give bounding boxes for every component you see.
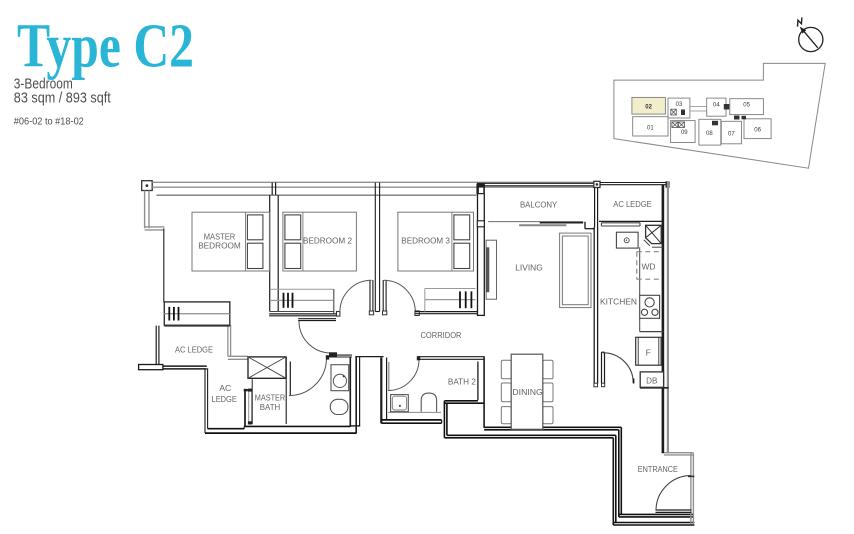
svg-text:F: F [646,347,651,357]
svg-text:07: 07 [728,132,735,138]
svg-text:09: 09 [681,130,688,136]
svg-text:MASTER: MASTER [255,393,285,403]
svg-text:01: 01 [647,125,654,131]
svg-text:BALCONY: BALCONY [520,200,558,210]
svg-text:83 sqm / 893 sqft: 83 sqm / 893 sqft [14,90,112,107]
svg-text:WD: WD [642,262,656,272]
svg-text:BEDROOM: BEDROOM [198,241,241,251]
svg-text:BATH: BATH [260,402,281,412]
svg-text:BEDROOM 3: BEDROOM 3 [401,236,450,246]
svg-text:AC: AC [219,383,231,393]
svg-text:05: 05 [743,103,750,109]
svg-text:BEDROOM 2: BEDROOM 2 [303,236,352,246]
svg-text:06: 06 [754,127,761,133]
svg-text:ENTRANCE: ENTRANCE [638,464,678,474]
svg-text:Type C2: Type C2 [17,13,194,81]
svg-text:04: 04 [713,102,720,108]
svg-text:03: 03 [676,102,683,108]
svg-text:08: 08 [706,131,713,137]
svg-text:AC LEDGE: AC LEDGE [175,344,213,354]
svg-text:LIVING: LIVING [515,263,543,273]
svg-text:02: 02 [645,104,652,110]
svg-text:KITCHEN: KITCHEN [600,296,637,306]
svg-text:CORRIDOR: CORRIDOR [421,330,462,340]
svg-text:DINING: DINING [512,387,543,397]
svg-text:AC LEDGE: AC LEDGE [613,199,652,209]
svg-text:LEDGE: LEDGE [212,394,238,404]
svg-text:BATH 2: BATH 2 [448,376,476,386]
svg-text:#06-02 to #18-02: #06-02 to #18-02 [14,116,84,128]
svg-text:DB: DB [646,376,658,386]
